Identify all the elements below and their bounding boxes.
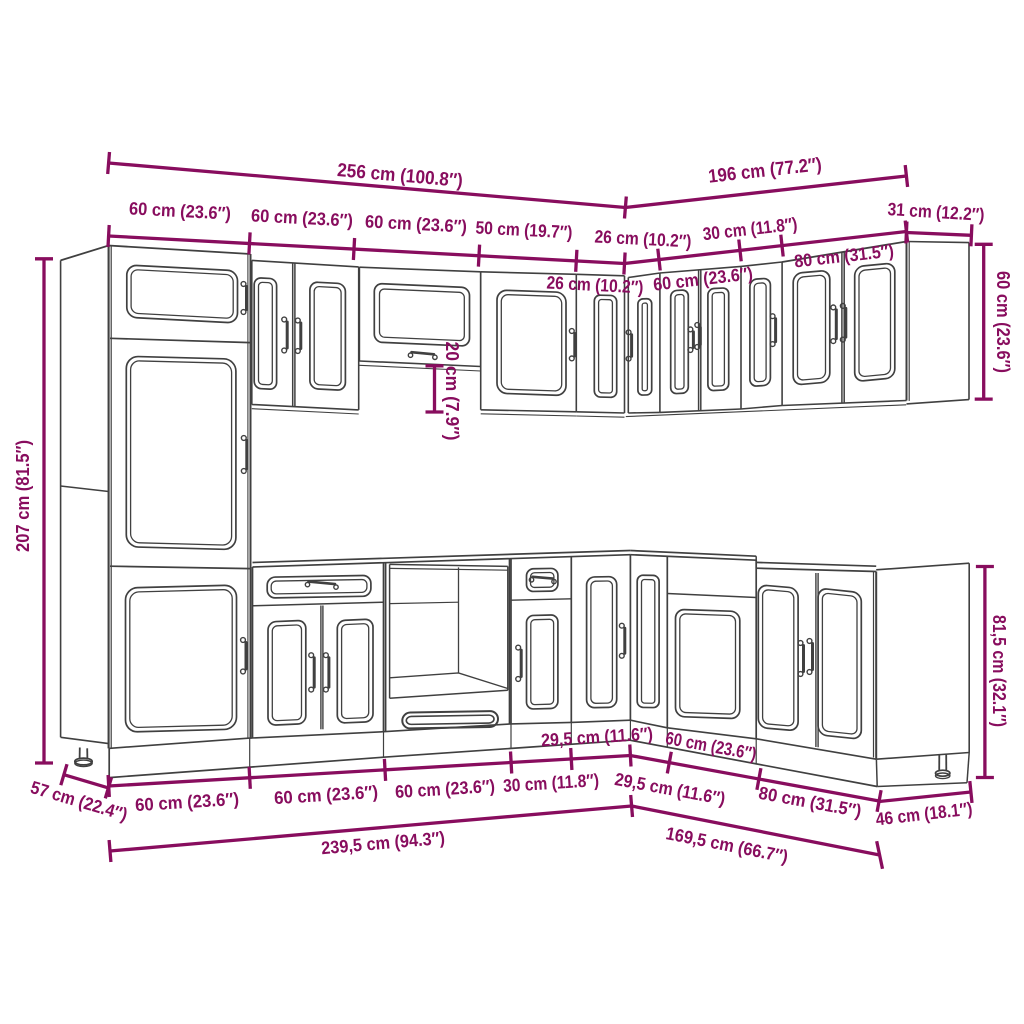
svg-text:81,5 cm (32.1″): 81,5 cm (32.1″)	[989, 615, 1009, 727]
svg-text:207 cm (81.5″): 207 cm (81.5″)	[13, 440, 33, 552]
svg-text:60 cm (23.6″): 60 cm (23.6″)	[993, 271, 1013, 373]
svg-text:20 cm (7.9″): 20 cm (7.9″)	[442, 342, 462, 441]
